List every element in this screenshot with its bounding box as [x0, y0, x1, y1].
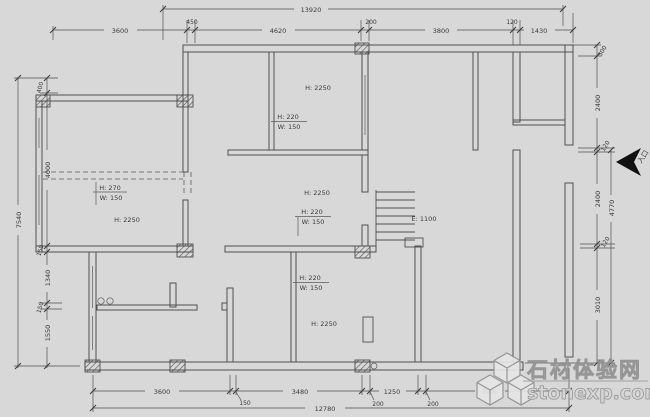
dim-bottom-total: 12780 [315, 405, 336, 413]
dim-right-outer-total: 4770 [608, 200, 616, 217]
opening-label-top: H: 220 [301, 208, 323, 216]
dim-bottom-seg: 3480 [292, 388, 309, 396]
dim-bottom-seg: 150 [239, 400, 251, 407]
dim-top-seg: 450 [186, 19, 198, 26]
watermark-text-url: stonexp.com [527, 382, 650, 404]
room-height-label: H: 2250 [305, 84, 331, 92]
dim-left-seg: 1340 [44, 270, 52, 287]
opening-label-bottom: W: 150 [300, 284, 323, 292]
watermark-text-cn: 石材体验网 [526, 358, 642, 382]
watermark: 石材体验网 stonexp.com [477, 353, 650, 405]
dim-top-seg: 4620 [270, 27, 287, 35]
dim-top-total: 13920 [301, 6, 322, 14]
dim-bottom-seg: 1250 [384, 388, 401, 396]
dim-top-seg: 1430 [531, 27, 548, 35]
opening-label-top: H: 220 [277, 113, 299, 121]
dim-top-seg: 3600 [112, 27, 129, 35]
dim-top-seg: 3800 [433, 27, 450, 35]
dim-top-seg: 120 [506, 19, 518, 26]
opening-label-bottom: W: 150 [278, 123, 301, 131]
opening-label-bottom: W: 150 [302, 218, 325, 226]
floor-plan-screenshot: 13920 3600 450 4620 200 3800 120 1430 36… [0, 0, 650, 417]
dim-left-seg: 1550 [44, 325, 52, 342]
background [0, 0, 650, 417]
dim-right-seg: 2400 [594, 95, 602, 112]
dim-left-total: 7540 [15, 212, 23, 229]
dim-top-seg: 200 [365, 19, 377, 26]
room-height-label: H: 2250 [311, 320, 337, 328]
room-height-label: H: 2250 [304, 189, 330, 197]
dim-right-seg: 3010 [594, 297, 602, 314]
floor-plan-canvas: 13920 3600 450 4620 200 3800 120 1430 36… [0, 0, 650, 417]
opening-label-top: H: 220 [299, 274, 321, 282]
opening-label-bottom: W: 150 [100, 194, 123, 202]
dim-right-seg: 2400 [594, 191, 602, 208]
dim-bottom-seg: 200 [427, 401, 439, 408]
dim-left-seg: 4000 [44, 162, 52, 179]
stair-elevation-label: E: 1100 [412, 215, 437, 223]
opening-label-top: H: 270 [99, 184, 121, 192]
dim-bottom-seg: 3600 [154, 388, 171, 396]
dim-bottom-seg: 200 [372, 401, 384, 408]
room-height-label: H: 2250 [114, 216, 140, 224]
